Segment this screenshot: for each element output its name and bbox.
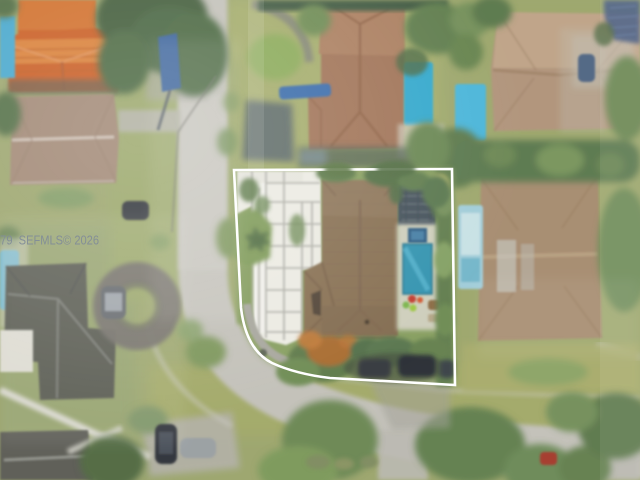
svg-text:979 SEFMLS© 2026: 979 SEFMLS© 2026 — [0, 233, 99, 248]
